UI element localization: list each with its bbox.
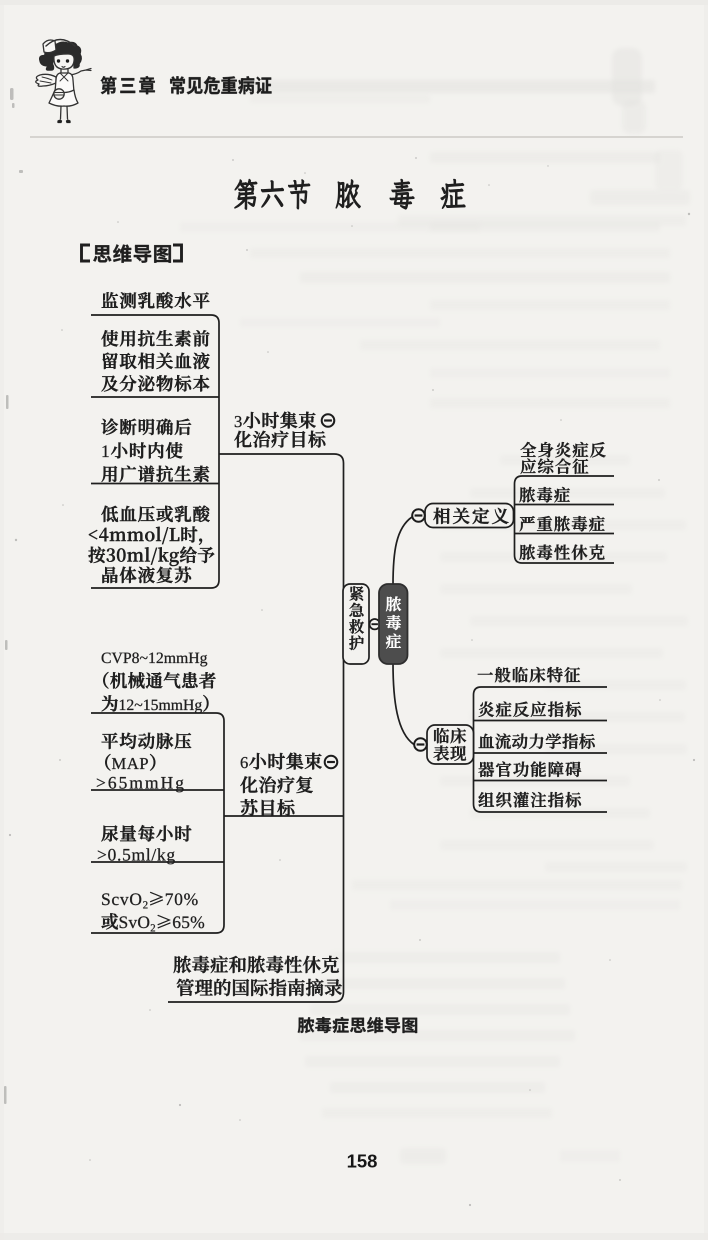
svg-text:158: 158 — [347, 1151, 378, 1172]
